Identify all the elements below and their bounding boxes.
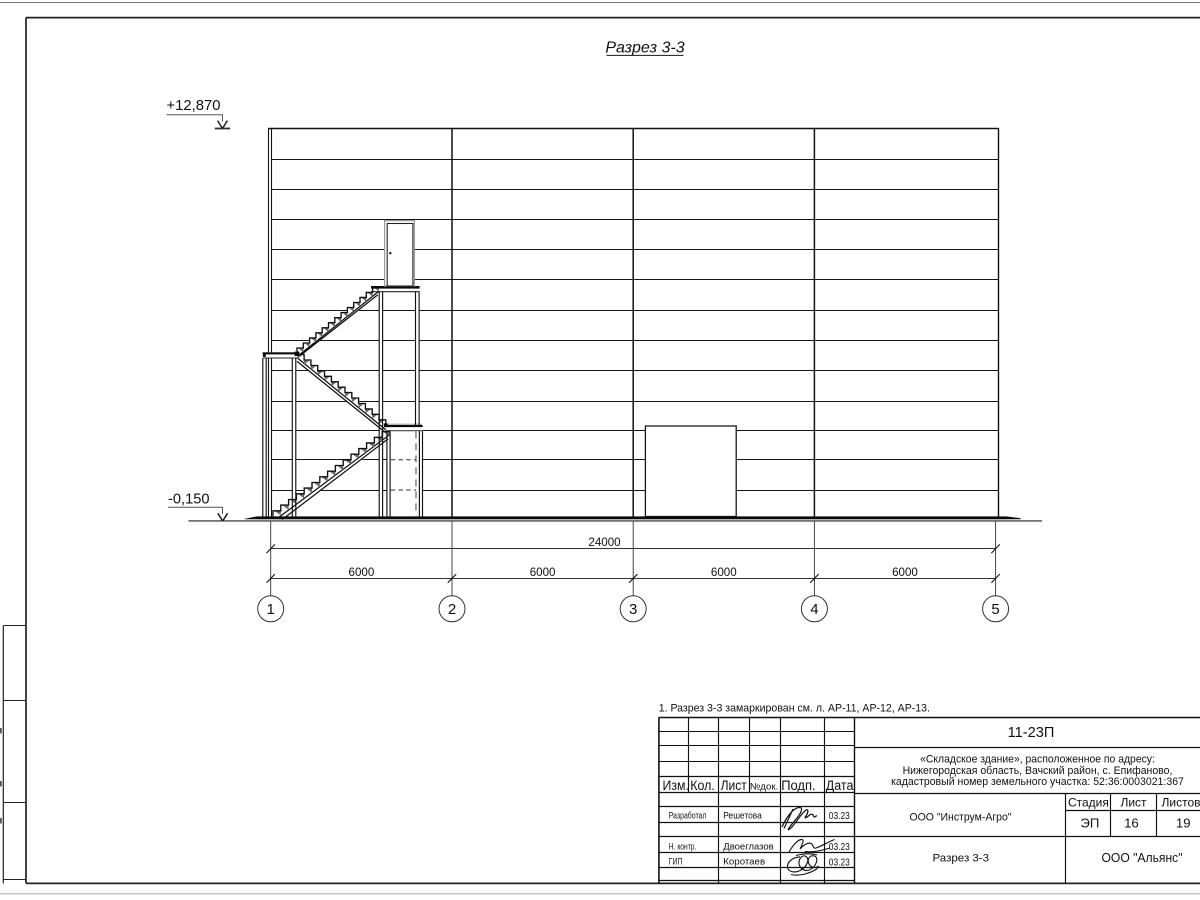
svg-text:Коротаев: Коротаев [723,857,765,868]
svg-text:03.23: 03.23 [829,842,850,853]
svg-text:Стадия: Стадия [1068,795,1109,809]
svg-text:+12,870: +12,870 [167,98,221,114]
svg-text:№док.: №док. [750,780,778,791]
svg-text:3: 3 [629,601,637,618]
svg-text:16: 16 [1124,815,1139,830]
svg-text:Разрез 3-3: Разрез 3-3 [933,852,990,864]
svg-text:Н. контр.: Н. контр. [669,842,697,853]
svg-text:«Складское здание», расположен: «Складское здание», расположенное по адр… [920,754,1155,766]
svg-text:Разрез 3-3: Разрез 3-3 [605,39,684,56]
svg-text:Изм.: Изм. [663,778,689,793]
svg-text:Лист: Лист [721,778,747,793]
svg-text:ООО "Инструм-Агро": ООО "Инструм-Агро" [910,812,1012,824]
svg-text:1: 1 [267,601,275,618]
svg-text:5: 5 [991,601,999,618]
svg-text:6000: 6000 [711,566,737,579]
svg-text:Листов: Листов [1162,795,1200,809]
svg-text:4: 4 [810,601,818,618]
svg-text:Дата: Дата [826,778,854,793]
svg-text:Лист: Лист [1120,795,1147,809]
svg-text:-0,150: -0,150 [168,492,210,508]
svg-text:Нижегородская область, Вачский: Нижегородская область, Вачский район, с.… [903,765,1173,777]
svg-text:6000: 6000 [892,566,918,579]
svg-text:6000: 6000 [349,566,375,579]
svg-text:Решетова: Решетова [723,811,762,822]
svg-text:Кол.: Кол. [690,778,715,793]
svg-text:ООО "Альянс": ООО "Альянс" [1102,851,1183,865]
svg-text:03.23: 03.23 [829,811,850,822]
svg-text:ГИП: ГИП [669,857,683,868]
svg-text:03.23: 03.23 [829,858,850,869]
svg-text:Разработал: Разработал [669,811,707,822]
svg-text:24000: 24000 [588,536,620,549]
svg-text:1. Разрез 3-3 замаркирован см.: 1. Разрез 3-3 замаркирован см. л. АР-11,… [659,702,930,714]
svg-text:кадастровый номер земельного у: кадастровый номер земельного участка: 52… [891,776,1184,788]
svg-text:Подп.: Подп. [781,778,815,793]
svg-text:6000: 6000 [530,566,556,579]
svg-text:ЭП: ЭП [1080,815,1099,830]
svg-text:2: 2 [448,601,456,618]
svg-text:11-23П: 11-23П [1008,725,1055,741]
svg-text:Двоеглазов: Двоеглазов [723,842,773,853]
svg-text:19: 19 [1176,815,1191,830]
